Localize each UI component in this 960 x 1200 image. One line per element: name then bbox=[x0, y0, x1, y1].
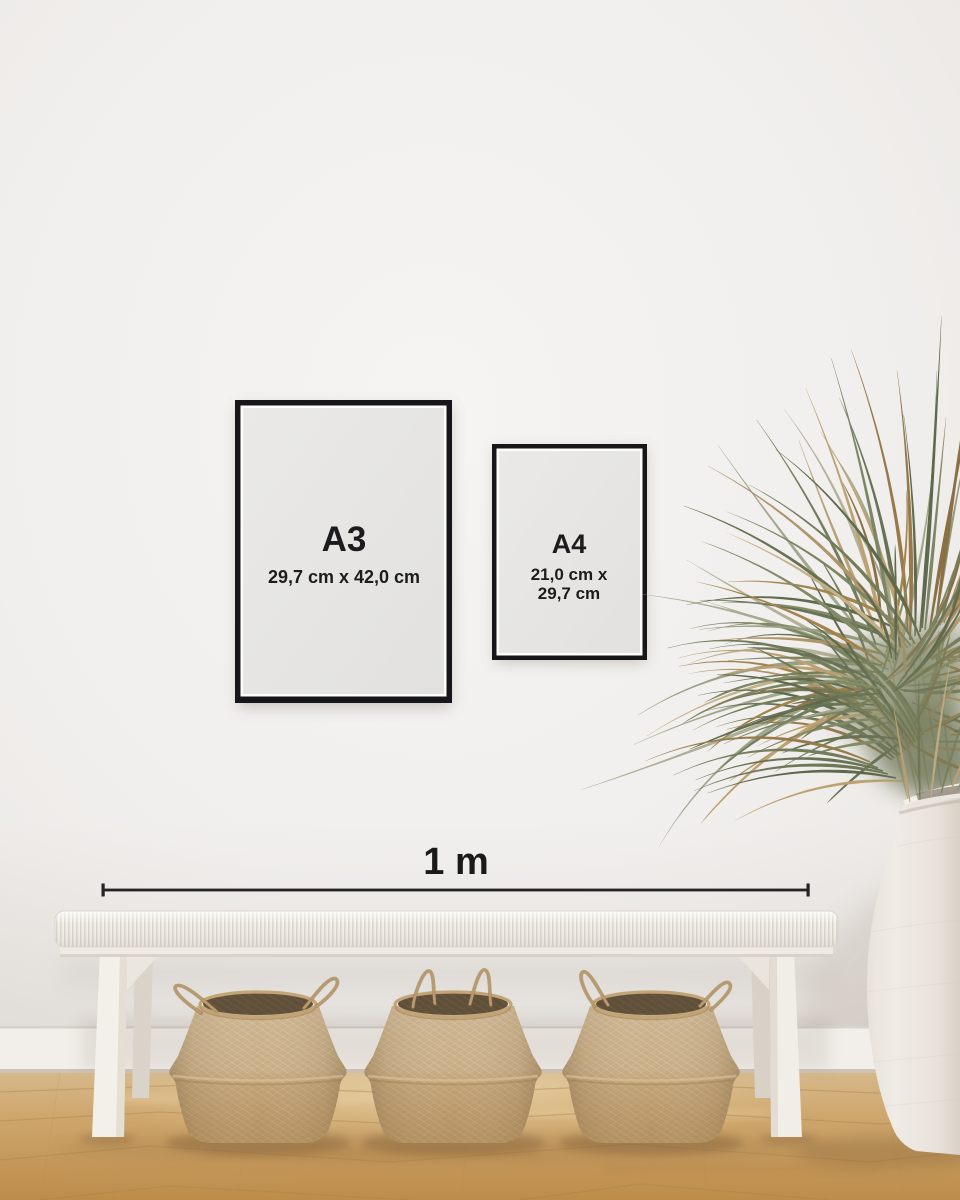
svg-text:A3: A3 bbox=[322, 520, 367, 559]
svg-text:29,7 cm x 42,0 cm: 29,7 cm x 42,0 cm bbox=[268, 567, 420, 587]
svg-text:A4: A4 bbox=[552, 529, 587, 559]
svg-text:21,0 cm x: 21,0 cm x bbox=[531, 565, 608, 584]
svg-text:29,7 cm: 29,7 cm bbox=[538, 584, 600, 603]
svg-text:1 m: 1 m bbox=[423, 841, 488, 883]
